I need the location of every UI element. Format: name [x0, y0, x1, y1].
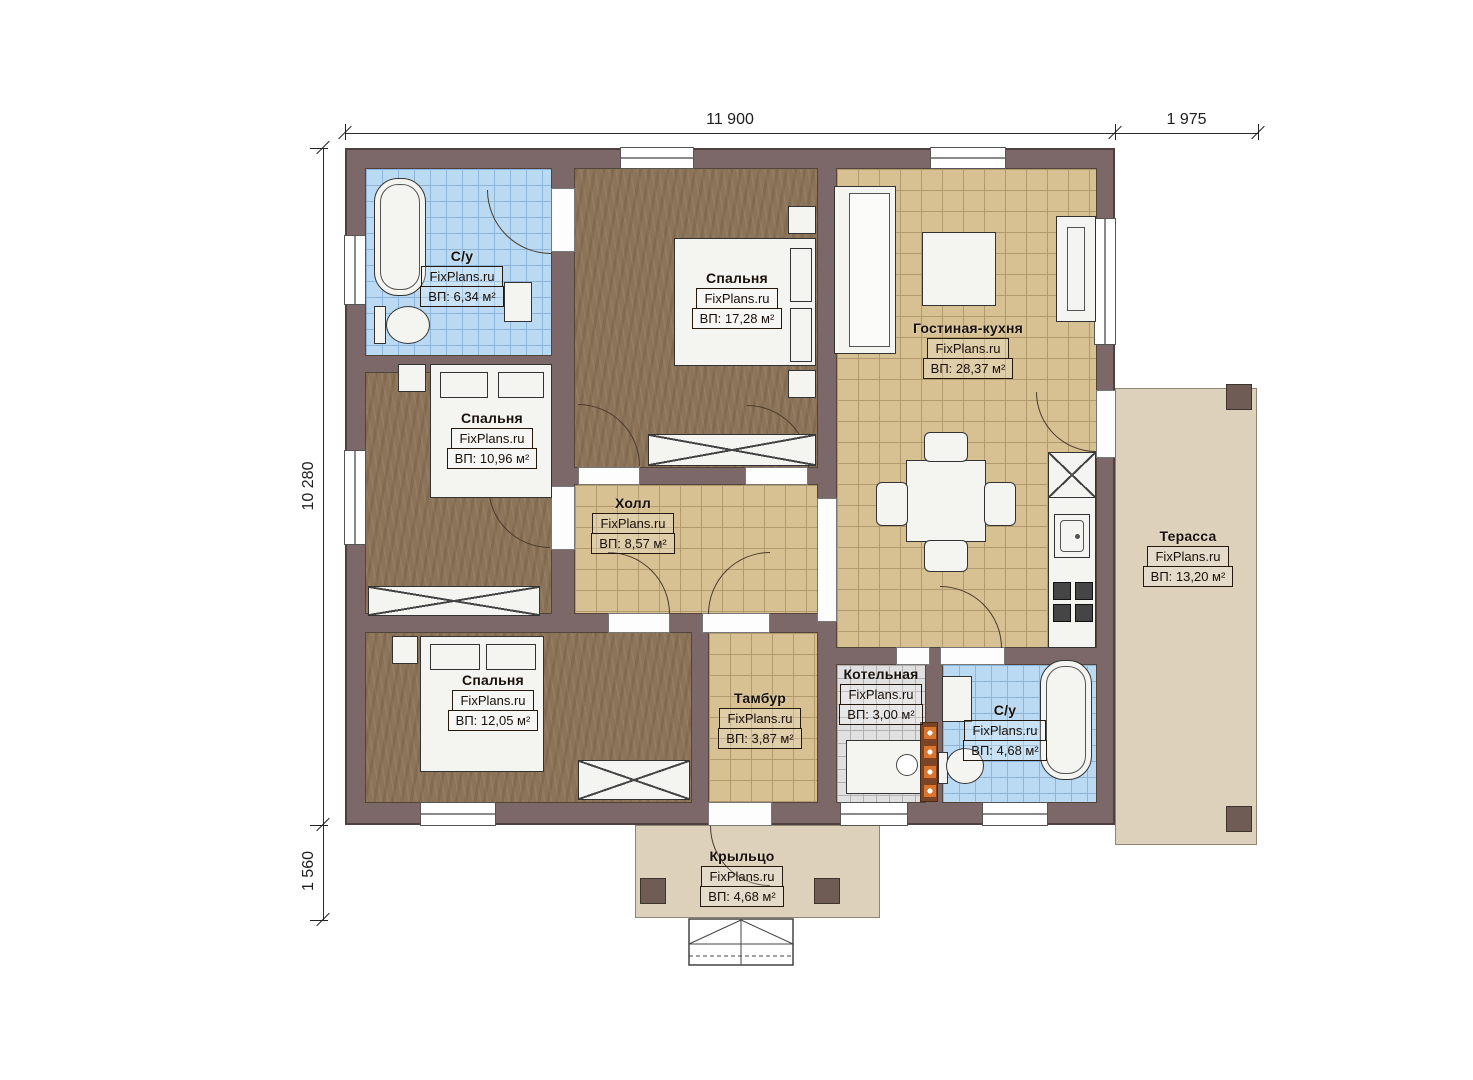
area-label: ВП: 4,68 м² [700, 886, 783, 907]
area-label: ВП: 8,57 м² [591, 533, 674, 554]
area-label: ВП: 3,00 м² [839, 704, 922, 725]
door-opening [551, 188, 575, 252]
room-name: Тамбур [734, 690, 786, 706]
toilet [386, 306, 430, 344]
room-label-bedroom-middle: Спальня FixPlans.ru ВП: 10,96 м² [417, 410, 567, 469]
area-label: ВП: 12,05 м² [448, 710, 539, 731]
nightstand [788, 206, 816, 234]
toilet-tank [374, 306, 386, 344]
dimension-line-top [345, 133, 1258, 134]
stove-burner [1075, 582, 1093, 600]
chair [924, 432, 968, 462]
entrance-door-opening [708, 802, 772, 826]
door-opening [896, 647, 930, 665]
entrance-steps [688, 918, 794, 966]
kitchen-cabinet [1048, 452, 1096, 498]
door-opening [608, 613, 670, 633]
wardrobe [368, 586, 540, 616]
door-opening [940, 647, 1005, 665]
pillow [430, 644, 480, 670]
terrace-column [1226, 384, 1252, 410]
area-label: ВП: 10,96 м² [447, 448, 538, 469]
chimney-brick [923, 765, 937, 779]
window [840, 802, 908, 826]
boiler-dial [896, 754, 918, 776]
dimension-line-left [323, 148, 324, 920]
dimension-label-height-porch: 1 560 [300, 826, 318, 916]
extension-line [310, 148, 328, 149]
room-label-bathroom-bottom: С/у FixPlans.ru ВП: 4,68 м² [930, 702, 1080, 761]
nightstand [398, 364, 426, 392]
stove-burner [1053, 582, 1071, 600]
door-opening [578, 467, 640, 485]
area-label: ВП: 17,28 м² [692, 308, 783, 329]
brand-label: FixPlans.ru [701, 866, 782, 887]
dining-table [906, 460, 986, 542]
door-opening [702, 613, 770, 633]
porch-column [640, 878, 666, 904]
room-label-bedroom-bottom: Спальня FixPlans.ru ВП: 12,05 м² [418, 672, 568, 731]
area-label: ВП: 6,34 м² [420, 286, 503, 307]
area-label: ВП: 3,87 м² [718, 728, 801, 749]
room-label-bathroom-top: С/у FixPlans.ru ВП: 6,34 м² [387, 248, 537, 307]
wardrobe [578, 760, 690, 800]
terrace-door-opening [1096, 390, 1116, 458]
room-label-terrace: Терасса FixPlans.ru ВП: 13,20 м² [1113, 528, 1263, 587]
chimney-brick [923, 784, 937, 798]
pillow [486, 644, 536, 670]
stove-burner [1053, 604, 1071, 622]
brand-label: FixPlans.ru [421, 266, 502, 287]
steps-icon [688, 918, 794, 966]
terrace-deck [1115, 388, 1257, 845]
porch-column [814, 878, 840, 904]
kitchen-sink [1054, 514, 1090, 558]
chair [984, 482, 1016, 526]
floor-plan-canvas: С/у FixPlans.ru ВП: 6,34 м² Спальня FixP… [0, 0, 1473, 1080]
brand-label: FixPlans.ru [452, 690, 533, 711]
window [344, 450, 366, 545]
window [1094, 218, 1116, 345]
wall-opening [817, 498, 837, 622]
room-name: С/у [994, 702, 1016, 718]
brand-label: FixPlans.ru [719, 708, 800, 729]
wardrobe [648, 434, 816, 466]
room-label-bedroom-top: Спальня FixPlans.ru ВП: 17,28 м² [662, 270, 812, 329]
chair [876, 482, 908, 526]
extension-line [1258, 124, 1259, 140]
window [982, 802, 1048, 826]
pillow [498, 372, 544, 398]
room-label-hall: Холл FixPlans.ru ВП: 8,57 м² [558, 495, 708, 554]
brand-label: FixPlans.ru [927, 338, 1008, 359]
room-name: С/у [451, 248, 473, 264]
room-name: Крыльцо [709, 848, 774, 864]
wardrobe [1056, 216, 1096, 322]
room-name: Спальня [462, 672, 524, 688]
window [420, 802, 496, 826]
extension-line [310, 920, 328, 921]
room-name: Спальня [461, 410, 523, 426]
stove-burner [1075, 604, 1093, 622]
brand-label: FixPlans.ru [840, 684, 921, 705]
brand-label: FixPlans.ru [451, 428, 532, 449]
dimension-label-width-main: 11 900 [345, 111, 1115, 129]
brand-label: FixPlans.ru [964, 720, 1045, 741]
room-name: Холл [615, 495, 651, 511]
area-label: ВП: 4,68 м² [963, 740, 1046, 761]
terrace-column [1226, 806, 1252, 832]
door-opening [745, 467, 808, 485]
room-name: Терасса [1160, 528, 1217, 544]
nightstand [788, 370, 816, 398]
nightstand [392, 636, 418, 664]
dimension-label-width-terrace: 1 975 [1115, 111, 1258, 129]
window [344, 235, 366, 305]
window [930, 147, 1006, 169]
room-label-living-kitchen: Гостиная-кухня FixPlans.ru ВП: 28,37 м² [893, 320, 1043, 379]
pillow [440, 372, 488, 398]
room-name: Котельная [843, 666, 918, 682]
brand-label: FixPlans.ru [1147, 546, 1228, 567]
room-name: Спальня [706, 270, 768, 286]
area-label: ВП: 28,37 м² [923, 358, 1014, 379]
room-label-porch: Крыльцо FixPlans.ru ВП: 4,68 м² [667, 848, 817, 907]
dimension-label-height-main: 10 280 [300, 441, 318, 531]
area-label: ВП: 13,20 м² [1143, 566, 1234, 587]
brand-label: FixPlans.ru [696, 288, 777, 309]
rug-table [922, 232, 996, 306]
chair [924, 540, 968, 572]
brand-label: FixPlans.ru [592, 513, 673, 534]
room-name: Гостиная-кухня [913, 320, 1023, 336]
sofa [834, 186, 896, 354]
window [620, 147, 694, 169]
